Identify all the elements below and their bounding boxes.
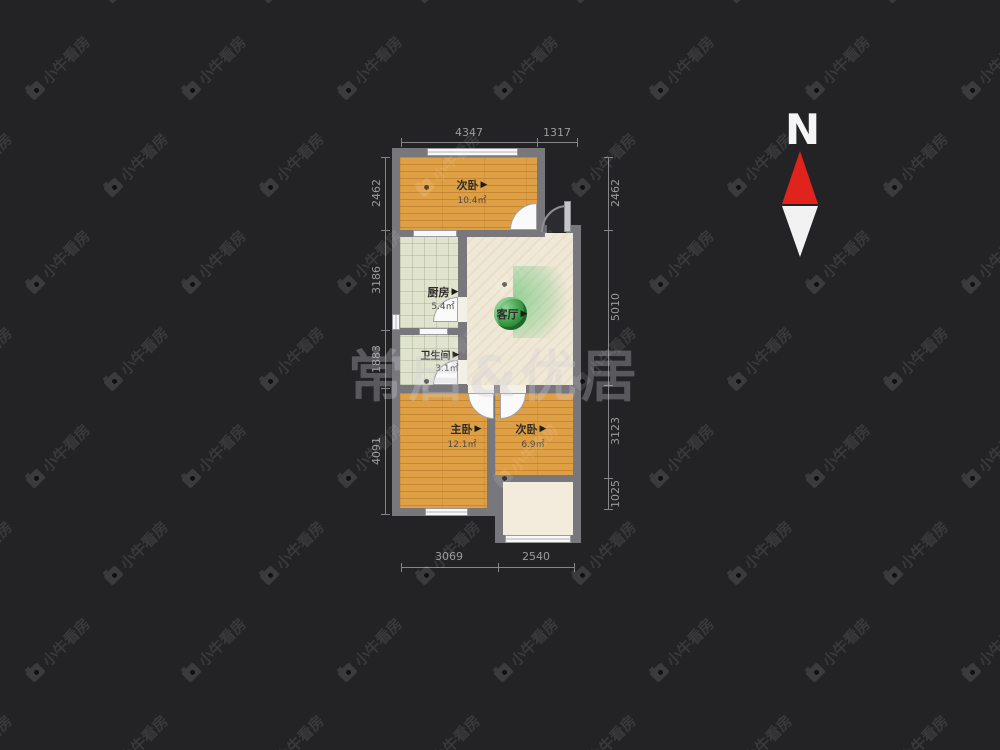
watermark-text: 小牛看房	[427, 710, 484, 750]
watermark-tile: 小牛看房	[958, 31, 1000, 103]
watermark-tile: 小牛看房	[256, 0, 328, 7]
camera-icon	[181, 80, 202, 101]
camera-icon	[103, 565, 124, 586]
door-direction-icon: ▶	[475, 424, 482, 434]
door-direction-icon: ▶	[540, 424, 547, 434]
watermark-tile: 小牛看房	[958, 419, 1000, 491]
room-name: 客厅	[497, 306, 519, 322]
door-gap-master	[468, 385, 494, 393]
north-arrow-red-icon	[782, 151, 818, 204]
watermark-tile: 小牛看房	[22, 31, 94, 103]
watermark-text: 小牛看房	[271, 710, 328, 750]
watermark-text: 小牛看房	[37, 613, 94, 670]
watermark-tile: 小牛看房	[412, 710, 484, 750]
watermark-tile: 小牛看房	[256, 516, 328, 588]
dim-label-left-1: 3186	[370, 250, 384, 310]
watermark-text: 小牛看房	[583, 710, 640, 750]
watermark-text: 小牛看房	[37, 31, 94, 88]
watermark-tile: 小牛看房	[412, 0, 484, 7]
watermark-text: 小牛看房	[115, 322, 172, 379]
watermark-tile: 小牛看房	[256, 710, 328, 750]
watermark-text: 小牛看房	[661, 613, 718, 670]
dim-tick	[381, 514, 390, 515]
camera-icon	[571, 0, 592, 4]
camera-icon	[649, 274, 670, 295]
watermark-text: 小牛看房	[271, 516, 328, 573]
door-direction-icon: ▶	[481, 180, 488, 190]
watermark-tile: 小牛看房	[22, 419, 94, 491]
room-name: 主卧	[451, 421, 473, 437]
dim-label-right-1: 5010	[609, 277, 623, 337]
camera-icon	[181, 274, 202, 295]
watermark-text: 小牛看房	[115, 128, 172, 185]
camera-icon	[883, 177, 904, 198]
room-label-bathroom: 卫生间 ▶	[395, 347, 485, 362]
camera-icon	[25, 662, 46, 683]
dim-label-left-3: 4091	[370, 421, 384, 481]
watermark-tile: 小牛看房	[178, 613, 250, 685]
camera-icon	[805, 80, 826, 101]
camera-icon	[181, 468, 202, 489]
camera-icon	[883, 371, 904, 392]
watermark-text: 小牛看房	[37, 419, 94, 476]
watermark-tile: 小牛看房	[646, 225, 718, 297]
watermark-text: 小牛看房	[895, 710, 952, 750]
dim-label-left-0: 2462	[370, 163, 384, 223]
dim-tick	[574, 563, 575, 572]
watermark-tile: 小牛看房	[880, 128, 952, 200]
window-kitchen-left	[392, 314, 400, 330]
window-balcony	[505, 535, 571, 543]
door-gap-bedroom-bottom	[500, 385, 526, 393]
dim-label-top-1: 1317	[527, 126, 587, 140]
watermark-tile: 小牛看房	[724, 322, 796, 394]
watermark-text: 小牛看房	[661, 225, 718, 282]
window-master	[425, 508, 468, 516]
watermark-tile: 小牛看房	[0, 516, 17, 588]
watermark-text: 小牛看房	[349, 613, 406, 670]
opening-kitchen-bathroom	[419, 328, 448, 335]
watermark-tile: 小牛看房	[22, 225, 94, 297]
room-label-living: 客厅 ▶	[467, 306, 557, 322]
camera-icon	[337, 468, 358, 489]
watermark-text: 小牛看房	[895, 516, 952, 573]
watermark-tile: 小牛看房	[646, 419, 718, 491]
watermark-text: 小牛看房	[739, 710, 796, 750]
dim-label-right-2: 3123	[609, 401, 623, 461]
watermark-tile: 小牛看房	[334, 613, 406, 685]
dim-line-top	[401, 142, 578, 143]
dim-tick	[604, 157, 613, 158]
camera-icon	[961, 274, 982, 295]
camera-icon	[103, 371, 124, 392]
watermark-tile: 小牛看房	[490, 613, 562, 685]
watermark-tile: 小牛看房	[568, 710, 640, 750]
dim-label-right-3: 1025	[609, 464, 623, 524]
room-label-bedroom-top: 次卧 ▶	[427, 177, 517, 193]
watermark-text: 小牛看房	[271, 128, 328, 185]
watermark-tile: 小牛看房	[178, 419, 250, 491]
watermark-tile: 小牛看房	[880, 710, 952, 750]
room-name: 次卧	[516, 421, 538, 437]
camera-icon	[727, 0, 748, 4]
watermark-tile: 小牛看房	[100, 128, 172, 200]
watermark-text: 小牛看房	[427, 516, 484, 573]
watermark-text: 小牛看房	[739, 322, 796, 379]
camera-icon	[883, 565, 904, 586]
dim-tick	[604, 230, 613, 231]
watermark-text: 小牛看房	[115, 516, 172, 573]
camera-icon	[337, 274, 358, 295]
north-label: N	[785, 105, 820, 154]
watermark-tile: 小牛看房	[100, 710, 172, 750]
watermark-tile: 小牛看房	[100, 0, 172, 7]
camera-icon	[493, 80, 514, 101]
camera-icon	[961, 468, 982, 489]
dim-label-bottom-1: 2540	[506, 550, 566, 564]
dim-line-bottom	[401, 567, 575, 568]
watermark-tile: 小牛看房	[802, 419, 874, 491]
watermark-text: 小牛看房	[193, 613, 250, 670]
watermark-tile: 小牛看房	[334, 31, 406, 103]
watermark-text: 小牛看房	[0, 516, 17, 573]
watermark-text: 小牛看房	[973, 31, 1000, 88]
dim-tick	[401, 563, 402, 572]
north-arrow-white-icon	[782, 206, 818, 257]
watermark-tile: 小牛看房	[0, 128, 17, 200]
wall-balcony-top	[495, 475, 573, 482]
door-direction-icon: ▶	[521, 309, 528, 319]
watermark-tile: 小牛看房	[568, 0, 640, 7]
watermark-tile: 小牛看房	[880, 516, 952, 588]
dim-label-right-0: 2462	[609, 163, 623, 223]
camera-icon	[805, 468, 826, 489]
room-label-kitchen: 厨房 ▶	[398, 284, 488, 300]
watermark-text: 小牛看房	[193, 225, 250, 282]
camera-icon	[337, 662, 358, 683]
watermark-tile: 小牛看房	[490, 31, 562, 103]
camera-icon	[25, 274, 46, 295]
watermark-text: 小牛看房	[817, 613, 874, 670]
watermark-tile: 小牛看房	[178, 31, 250, 103]
watermark-text: 小牛看房	[37, 225, 94, 282]
camera-icon	[415, 565, 436, 586]
camera-icon	[103, 177, 124, 198]
room-name: 厨房	[428, 284, 450, 300]
watermark-text: 小牛看房	[817, 31, 874, 88]
watermark-tile: 小牛看房	[0, 322, 17, 394]
watermark-tile: 小牛看房	[880, 322, 952, 394]
door-direction-icon: ▶	[452, 287, 459, 297]
camera-icon	[571, 177, 592, 198]
camera-icon	[805, 274, 826, 295]
watermark-text: 小牛看房	[193, 31, 250, 88]
watermark-text: 小牛看房	[0, 128, 17, 185]
dim-label-bottom-0: 3069	[419, 550, 479, 564]
floorplan-viewer: 次卧 ▶ 10.4㎡ 厨房 ▶ 5.4㎡ 卫生间 ▶ 3.1㎡ 客厅 ▶ 主卧 …	[0, 0, 1000, 750]
camera-icon	[883, 0, 904, 4]
room-balcony-floor	[503, 482, 573, 535]
door-direction-icon: ▶	[453, 350, 460, 360]
dim-tick	[498, 563, 499, 572]
camera-icon	[25, 468, 46, 489]
watermark-tile: 小牛看房	[958, 613, 1000, 685]
camera-icon	[961, 80, 982, 101]
camera-icon	[727, 371, 748, 392]
watermark-tile: 小牛看房	[802, 613, 874, 685]
room-area-bathroom: 3.1㎡	[402, 361, 492, 374]
camera-icon	[415, 0, 436, 4]
camera-icon	[727, 565, 748, 586]
watermark-text: 小牛看房	[505, 31, 562, 88]
dim-label-top-0: 4347	[439, 126, 499, 140]
camera-icon	[649, 468, 670, 489]
camera-icon	[493, 662, 514, 683]
camera-icon	[961, 662, 982, 683]
watermark-text: 小牛看房	[505, 613, 562, 670]
room-name: 卫生间	[421, 347, 451, 362]
watermark-text: 小牛看房	[817, 225, 874, 282]
watermark-text: 小牛看房	[661, 31, 718, 88]
camera-icon	[649, 662, 670, 683]
watermark-text: 小牛看房	[115, 710, 172, 750]
watermark-tile: 小牛看房	[646, 613, 718, 685]
watermark-tile: 小牛看房	[880, 0, 952, 7]
watermark-tile: 小牛看房	[802, 31, 874, 103]
wall-balcony-left	[495, 475, 503, 543]
watermark-text: 小牛看房	[973, 225, 1000, 282]
dim-tick	[381, 157, 390, 158]
watermark-text: 小牛看房	[895, 128, 952, 185]
camera-icon	[259, 371, 280, 392]
camera-icon	[649, 80, 670, 101]
watermark-tile: 小牛看房	[100, 516, 172, 588]
watermark-tile: 小牛看房	[0, 710, 17, 750]
watermark-text: 小牛看房	[895, 322, 952, 379]
watermark-tile: 小牛看房	[22, 613, 94, 685]
room-area-bedroom-top: 10.4㎡	[427, 193, 517, 206]
room-area-bedroom-bottom: 6.9㎡	[488, 437, 578, 450]
camera-icon	[259, 177, 280, 198]
camera-icon	[259, 0, 280, 4]
watermark-text: 小牛看房	[0, 710, 17, 750]
camera-icon	[25, 80, 46, 101]
watermark-text: 小牛看房	[349, 31, 406, 88]
watermark-tile: 小牛看房	[646, 31, 718, 103]
watermark-text: 小牛看房	[583, 516, 640, 573]
dim-tick	[604, 385, 613, 386]
watermark-text: 小牛看房	[661, 419, 718, 476]
camera-icon	[727, 177, 748, 198]
camera-icon	[337, 80, 358, 101]
watermark-text: 小牛看房	[0, 322, 17, 379]
opening-bedroom-kitchen	[413, 230, 457, 237]
watermark-tile: 小牛看房	[724, 710, 796, 750]
watermark-text: 小牛看房	[973, 613, 1000, 670]
watermark-tile: 小牛看房	[724, 516, 796, 588]
camera-icon	[805, 662, 826, 683]
entry-door-leaf	[564, 201, 571, 232]
watermark-tile: 小牛看房	[724, 0, 796, 7]
dim-tick	[401, 138, 402, 147]
watermark-text: 小牛看房	[739, 516, 796, 573]
room-label-bedroom-bottom: 次卧 ▶	[486, 421, 576, 437]
dim-tick	[381, 230, 390, 231]
watermark-tile: 小牛看房	[100, 322, 172, 394]
camera-icon	[181, 662, 202, 683]
dim-label-left-2: 1883	[370, 329, 384, 389]
watermark-text: 小牛看房	[973, 419, 1000, 476]
watermark-text: 小牛看房	[817, 419, 874, 476]
camera-icon	[259, 565, 280, 586]
watermark-tile: 小牛看房	[256, 322, 328, 394]
watermark-tile: 小牛看房	[0, 0, 17, 7]
camera-icon	[103, 0, 124, 4]
window-bedroom-top	[427, 148, 518, 156]
room-name: 次卧	[457, 177, 479, 193]
watermark-tile: 小牛看房	[958, 225, 1000, 297]
watermark-tile: 小牛看房	[178, 225, 250, 297]
watermark-text: 小牛看房	[271, 322, 328, 379]
dim-line-left	[385, 157, 386, 515]
watermark-text: 小牛看房	[193, 419, 250, 476]
watermark-tile: 小牛看房	[256, 128, 328, 200]
